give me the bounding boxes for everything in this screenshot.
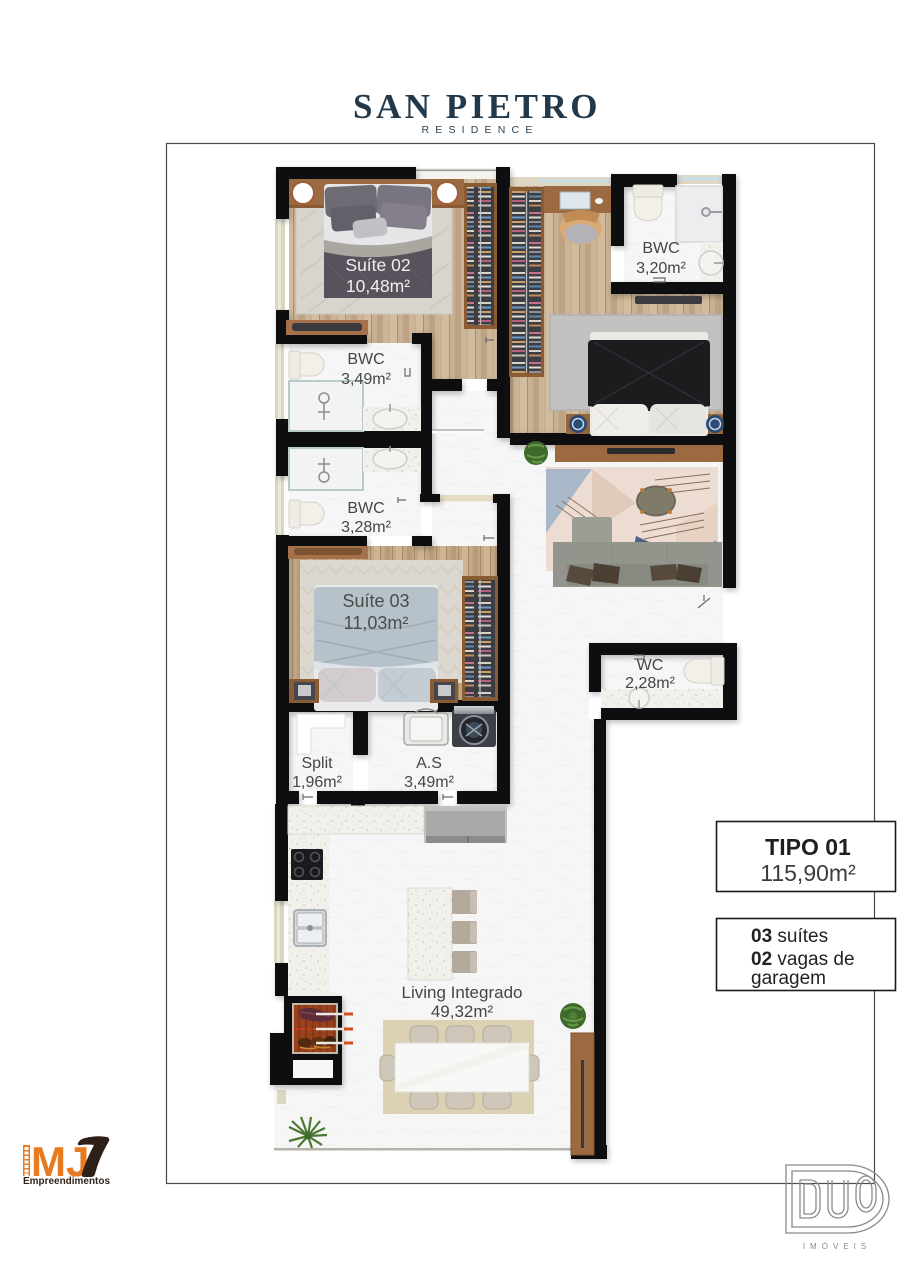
svg-text:1,96m²: 1,96m²	[292, 774, 342, 791]
svg-text:3,49m²: 3,49m²	[404, 774, 454, 791]
svg-text:2,28m²: 2,28m²	[625, 675, 675, 692]
svg-text:11,03m²: 11,03m²	[344, 613, 409, 633]
svg-text:Suíte 03: Suíte 03	[342, 591, 409, 611]
svg-text:10,48m²: 10,48m²	[346, 276, 410, 296]
svg-text:03 suítes: 03 suítes	[751, 926, 828, 947]
svg-text:TIPO 01: TIPO 01	[765, 834, 851, 860]
svg-text:115,90m²: 115,90m²	[760, 860, 856, 886]
svg-text:A.S: A.S	[416, 755, 442, 772]
svg-text:Empreendimentos: Empreendimentos	[23, 1176, 110, 1187]
svg-text:SAN PIETRO: SAN PIETRO	[353, 87, 601, 126]
svg-text:BWC: BWC	[642, 240, 679, 257]
svg-text:Living Integrado: Living Integrado	[402, 983, 523, 1002]
svg-text:IMÓVEIS: IMÓVEIS	[803, 1242, 871, 1251]
svg-text:3,28m²: 3,28m²	[341, 519, 391, 536]
svg-text:BWC: BWC	[347, 351, 384, 368]
svg-text:garagem: garagem	[751, 968, 826, 989]
svg-text:3,49m²: 3,49m²	[341, 371, 391, 388]
svg-text:Split: Split	[301, 755, 333, 772]
svg-text:49,32m²: 49,32m²	[431, 1002, 494, 1021]
svg-text:BWC: BWC	[347, 500, 384, 517]
svg-text:02 vagas de: 02 vagas de	[751, 949, 855, 970]
svg-text:RESIDENCE: RESIDENCE	[421, 124, 538, 136]
svg-text:3,20m²: 3,20m²	[636, 260, 686, 277]
svg-text:Suíte 02: Suíte 02	[345, 255, 410, 275]
